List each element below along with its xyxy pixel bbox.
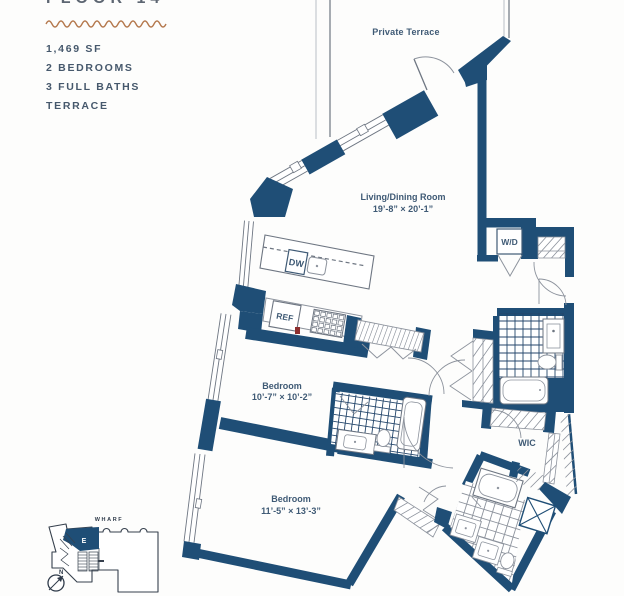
svg-text:Bedroom: Bedroom xyxy=(262,381,302,391)
svg-text:19’-8” × 20’-1”: 19’-8” × 20’-1” xyxy=(373,204,433,214)
svg-text:WHARF: WHARF xyxy=(95,517,123,523)
svg-text:FLOOR 14: FLOOR 14 xyxy=(46,0,164,7)
svg-text:E: E xyxy=(82,538,87,545)
svg-text:WIC: WIC xyxy=(518,438,536,448)
svg-text:N: N xyxy=(59,570,63,576)
svg-text:Bedroom: Bedroom xyxy=(271,494,311,504)
svg-text:W/D: W/D xyxy=(501,237,518,247)
svg-text:Living/Dining Room: Living/Dining Room xyxy=(361,192,446,202)
svg-text:10’-7” × 10’-2”: 10’-7” × 10’-2” xyxy=(252,392,312,402)
svg-text:Private Terrace: Private Terrace xyxy=(372,27,439,37)
svg-text:11’-5” × 13’-3”: 11’-5” × 13’-3” xyxy=(261,506,321,516)
